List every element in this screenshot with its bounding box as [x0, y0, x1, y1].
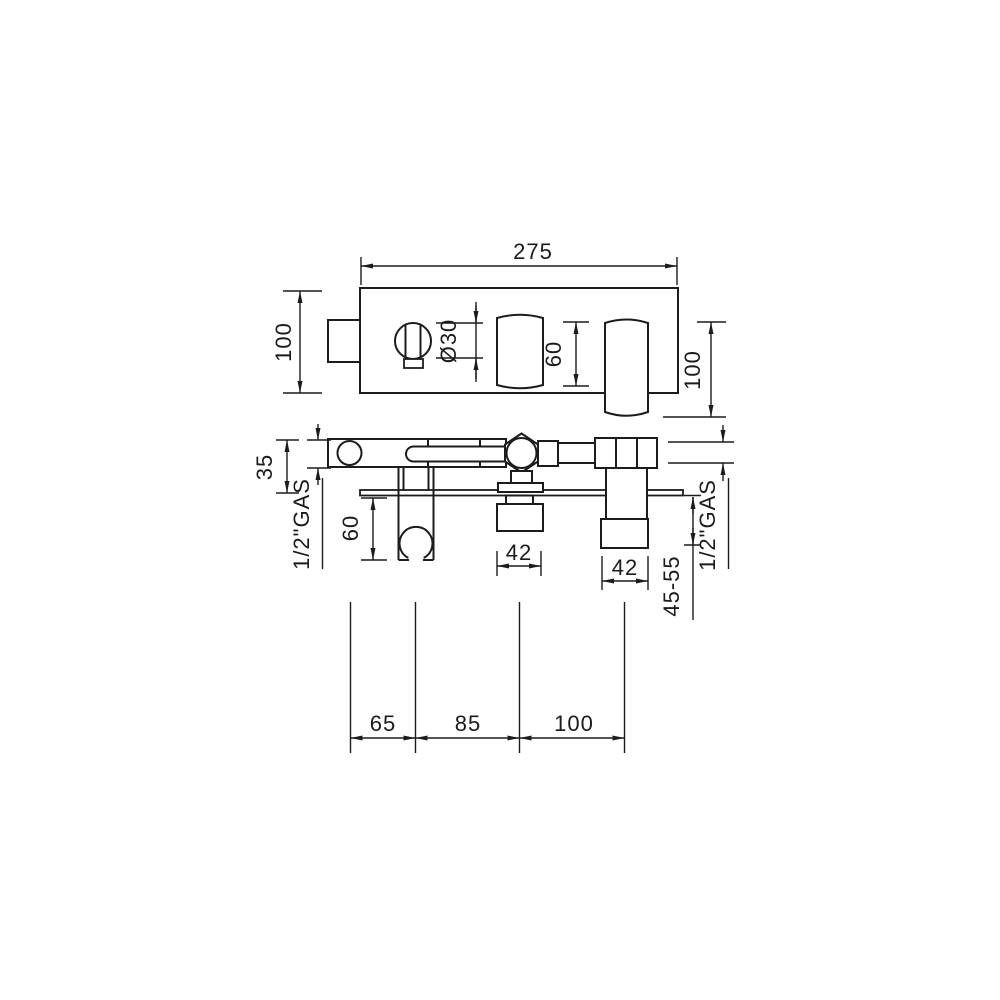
dimension-right-inlet-thread: 1/2"GAS [668, 425, 734, 571]
handshower-holder [399, 467, 434, 560]
dimension-centerlines: 65 85 100 [351, 602, 625, 753]
knob-lever-tip [404, 359, 423, 368]
dimension-left-inlet-thread: 1/2"GAS [289, 424, 331, 570]
right-outlet-stem [606, 468, 647, 519]
dim-label-holder-drop: 60 [338, 515, 363, 541]
dim-label-handle-height: 60 [541, 341, 566, 367]
spout-plan [605, 320, 648, 416]
body-right-collar [538, 441, 558, 466]
center-outlet-stem [506, 496, 533, 505]
wall-union-tab [328, 320, 362, 362]
dim-label-right-outlet-width: 42 [612, 555, 638, 580]
dim-label-center-outlet-width: 42 [506, 540, 532, 565]
dimension-center-outlet-width: 42 [497, 540, 541, 576]
holder-ring [400, 527, 433, 558]
dim-label-body-depth: 35 [252, 454, 277, 480]
connection-pipe [558, 443, 595, 463]
right-nut-block [595, 438, 657, 468]
dim-label-centers-right: 100 [554, 711, 594, 736]
holder-struts-inner [404, 467, 429, 490]
dim-label-spout-length: 100 [680, 350, 705, 390]
top-view [328, 288, 678, 416]
technical-drawing-page: 275 100 Ø30 60 100 35 1/2"GAS 60 [0, 0, 1000, 1000]
center-outlet-flange [498, 483, 543, 492]
dim-label-plate-height: 100 [271, 322, 296, 362]
dim-label-plate-width: 275 [513, 239, 553, 264]
mixer-dimension-drawing: 275 100 Ø30 60 100 35 1/2"GAS 60 [0, 0, 1000, 1000]
mixer-handle-plan [497, 315, 543, 389]
hose-tube [406, 447, 513, 462]
dimension-holder-drop: 60 [338, 498, 387, 560]
dimension-right-outlet-width: 42 [602, 555, 648, 590]
dim-label-projection: 45-55 [659, 555, 684, 616]
dimension-plate-width: 275 [361, 239, 677, 285]
dim-label-right-inlet: 1/2"GAS [695, 479, 720, 571]
center-outlet-neck [511, 471, 532, 483]
dimension-plate-height-left: 100 [271, 291, 322, 393]
dim-label-centers-middle: 85 [455, 711, 481, 736]
dim-label-left-inlet: 1/2"GAS [289, 478, 314, 570]
valve-hex-nut [505, 434, 538, 473]
right-outlet-block [601, 519, 648, 548]
dim-label-centers-left: 65 [370, 711, 396, 736]
center-outlet-block [497, 504, 543, 531]
dim-label-knob-diameter: Ø30 [436, 319, 461, 364]
